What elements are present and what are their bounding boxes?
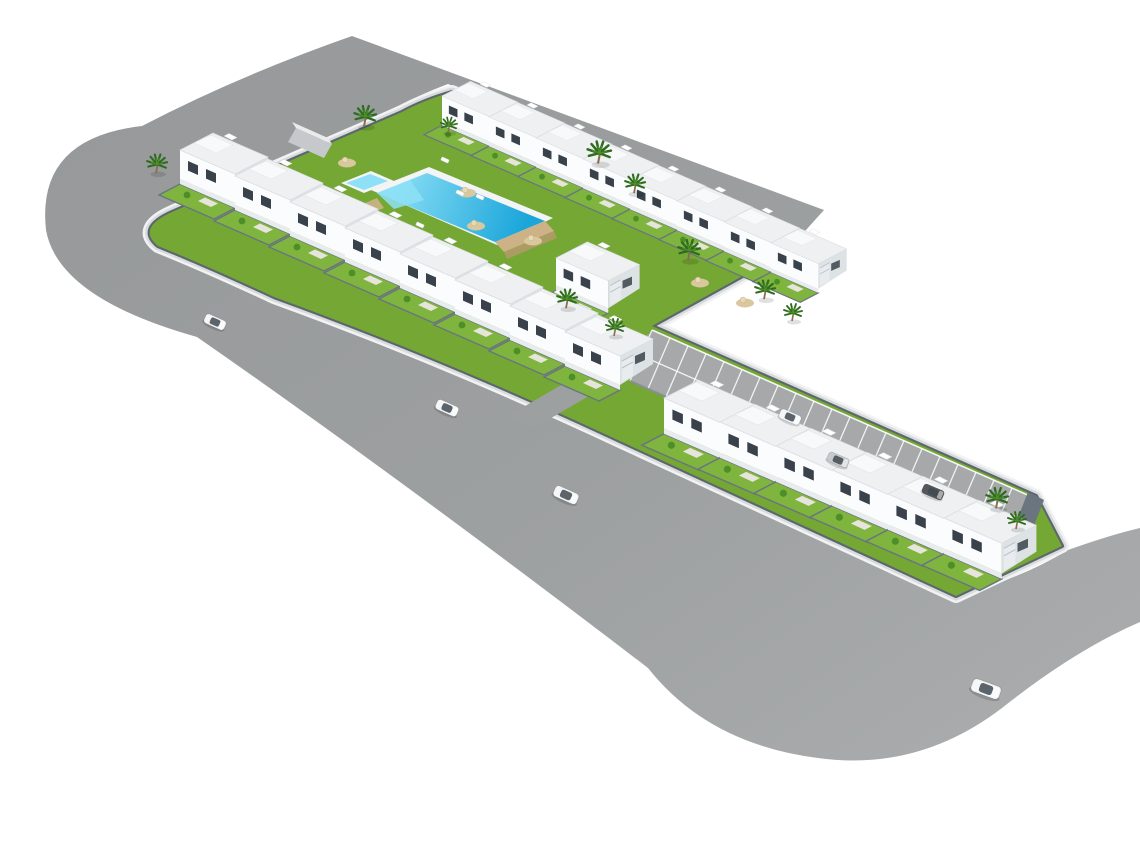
site-plan-svg — [0, 0, 1140, 860]
development-aerial-render — [0, 0, 1140, 860]
